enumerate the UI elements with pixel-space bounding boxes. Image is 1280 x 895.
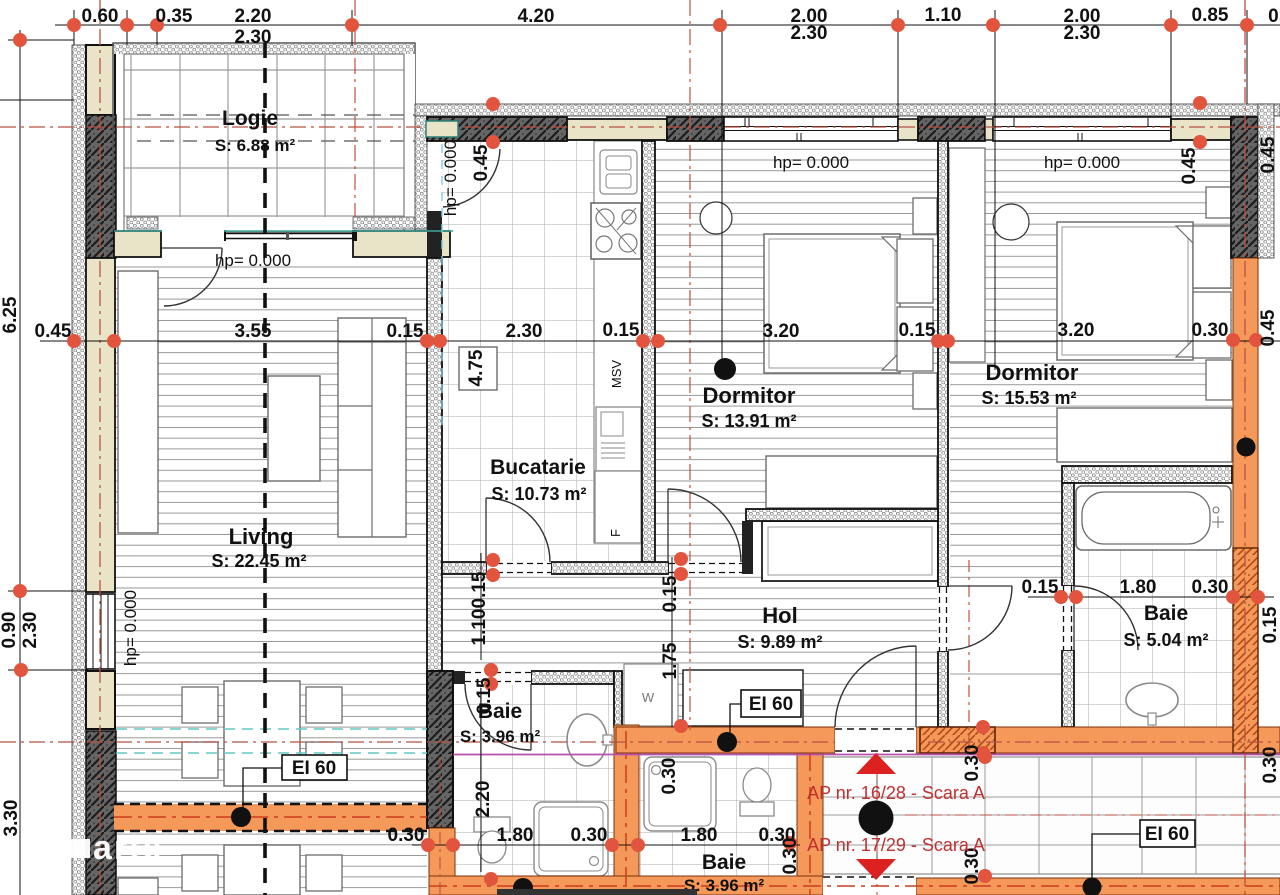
svg-text:Dormitor: Dormitor	[986, 360, 1079, 385]
svg-text:0.30: 0.30	[962, 745, 983, 782]
svg-text:AP nr. 17/29 - Scara A: AP nr. 17/29 - Scara A	[807, 835, 985, 855]
svg-text:Living: Living	[229, 524, 294, 549]
svg-text:0.15: 0.15	[387, 321, 424, 342]
svg-text:0.45: 0.45	[1179, 147, 1200, 184]
svg-text:S: 15.53 m²: S: 15.53 m²	[981, 388, 1076, 408]
svg-text:0.15: 0.15	[469, 571, 490, 608]
svg-text:Bucatarie: Bucatarie	[490, 456, 586, 479]
svg-text:Baie: Baie	[1144, 602, 1188, 625]
svg-text:EI 60: EI 60	[292, 758, 336, 779]
svg-text:hp= 0.000: hp= 0.000	[121, 590, 140, 666]
svg-text:0.: 0.	[1268, 6, 1280, 27]
svg-text:S: 10.73 m²: S: 10.73 m²	[491, 484, 586, 504]
svg-text:hp= 0.000: hp= 0.000	[215, 251, 291, 270]
svg-text:3.20: 3.20	[1058, 320, 1095, 341]
svg-text:2.30: 2.30	[20, 612, 41, 649]
svg-text:hp= 0.000: hp= 0.000	[773, 153, 849, 172]
svg-text:0.90: 0.90	[0, 612, 20, 649]
svg-text:0.15: 0.15	[899, 320, 936, 341]
svg-text:0.35: 0.35	[156, 6, 193, 27]
svg-text:S: 22.45 m²: S: 22.45 m²	[211, 551, 306, 571]
svg-text:F: F	[608, 529, 623, 537]
svg-text:1.10: 1.10	[469, 609, 490, 646]
svg-text:2.20: 2.20	[235, 6, 272, 27]
svg-text:0.30: 0.30	[780, 838, 801, 875]
svg-text:6.25: 6.25	[0, 296, 21, 333]
svg-text:S: 6.88 m²: S: 6.88 m²	[215, 136, 296, 155]
svg-text:Hol: Hol	[762, 603, 797, 628]
svg-text:S: 13.91 m²: S: 13.91 m²	[701, 411, 796, 431]
svg-text:1.75: 1.75	[660, 642, 681, 679]
svg-text:S: 9.89 m²: S: 9.89 m²	[737, 632, 822, 652]
svg-text:AP nr. 16/28 - Scara A: AP nr. 16/28 - Scara A	[807, 783, 985, 803]
svg-text:0.30: 0.30	[659, 758, 680, 795]
svg-text:EI 60: EI 60	[749, 694, 793, 715]
svg-text:0.15: 0.15	[1260, 606, 1280, 643]
svg-text:S: 3.96 m²: S: 3.96 m²	[460, 727, 541, 746]
svg-text:3.30: 3.30	[1, 800, 22, 837]
svg-text:0.30: 0.30	[571, 825, 608, 846]
svg-text:0.45: 0.45	[471, 144, 492, 181]
svg-text:arte: arte	[93, 829, 163, 867]
svg-text:1.80: 1.80	[681, 825, 718, 846]
svg-text:Baie: Baie	[478, 700, 522, 723]
svg-text:0.30: 0.30	[1192, 320, 1229, 341]
svg-text:2.30: 2.30	[506, 321, 543, 342]
svg-text:2.30: 2.30	[1064, 23, 1101, 44]
svg-text:0.45: 0.45	[1258, 309, 1279, 346]
svg-text:3.55: 3.55	[235, 321, 272, 342]
svg-text:1.10: 1.10	[925, 5, 962, 26]
svg-text:Baie: Baie	[702, 851, 746, 874]
svg-text:2.30: 2.30	[235, 27, 272, 48]
svg-text:S: 5.04 m²: S: 5.04 m²	[1123, 630, 1208, 650]
svg-text:1.80: 1.80	[497, 825, 534, 846]
svg-text:2.30: 2.30	[791, 23, 828, 44]
svg-text:W: W	[642, 690, 655, 705]
svg-text:0.45: 0.45	[1258, 136, 1279, 173]
svg-text:Logie: Logie	[222, 107, 278, 130]
svg-text:0.85: 0.85	[1192, 5, 1229, 26]
svg-text:hp= 0.000: hp= 0.000	[441, 140, 460, 216]
svg-text:0.30: 0.30	[388, 825, 425, 846]
svg-text:0.60: 0.60	[82, 6, 119, 27]
svg-text:0.30: 0.30	[1260, 747, 1280, 784]
svg-text:0.45: 0.45	[35, 321, 72, 342]
svg-text:0.15: 0.15	[660, 575, 681, 612]
svg-text:Dormitor: Dormitor	[703, 383, 796, 408]
svg-text:hp= 0.000: hp= 0.000	[1044, 153, 1120, 172]
svg-text:0.15: 0.15	[603, 320, 640, 341]
svg-text:0.30: 0.30	[1192, 577, 1229, 598]
svg-text:4.75: 4.75	[466, 349, 487, 386]
svg-text:EI 60: EI 60	[1145, 824, 1189, 845]
svg-text:0.15: 0.15	[1022, 577, 1059, 598]
svg-text:1.80: 1.80	[1120, 577, 1157, 598]
svg-text:3.20: 3.20	[763, 321, 800, 342]
svg-text:MSV: MSV	[609, 360, 624, 389]
svg-text:2.20: 2.20	[473, 781, 494, 818]
svg-text:4.20: 4.20	[518, 6, 555, 27]
